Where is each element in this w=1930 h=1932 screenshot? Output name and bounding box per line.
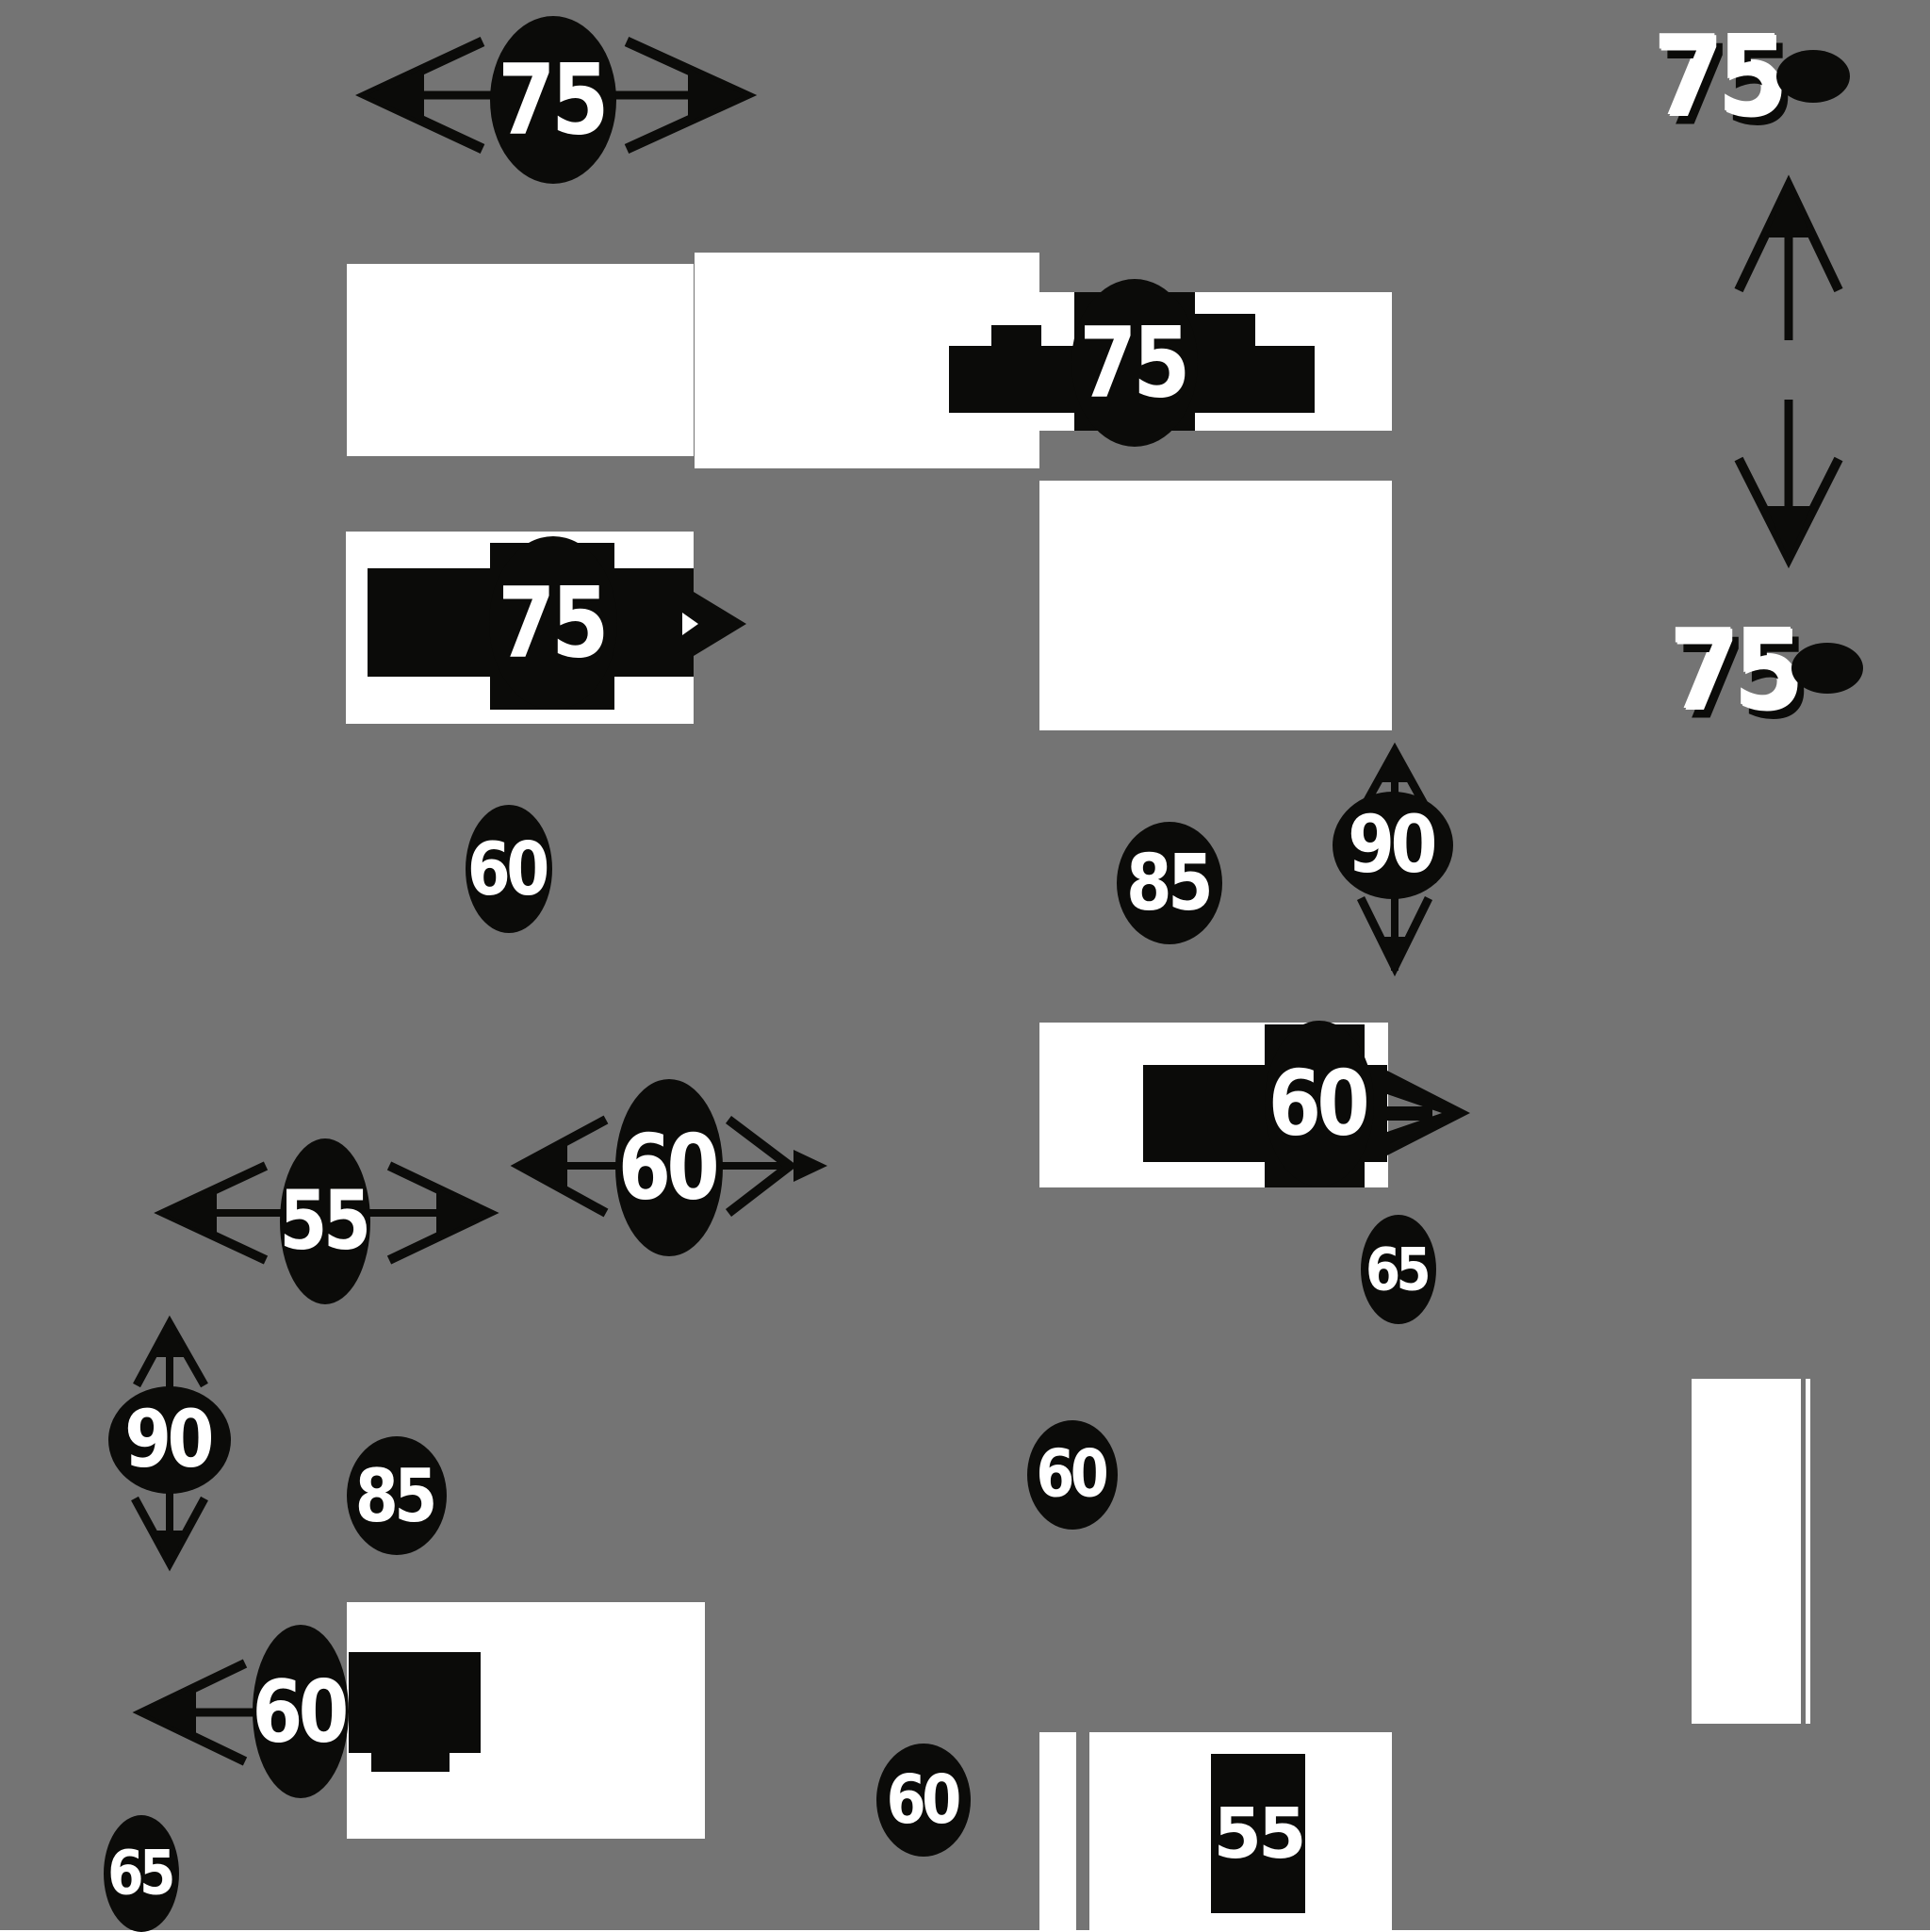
oval-60-bottom: 60 [876, 1744, 971, 1857]
oval-60-double-arrow-value: 60 [618, 1122, 720, 1212]
oval-65-bottom-left: 65 [104, 1815, 179, 1932]
oval-75-top-arrow: 75 [490, 16, 616, 184]
oval-75-row3: 75 [489, 536, 617, 710]
oval-75-band-value: 75 [1079, 314, 1190, 412]
oval-60-bottom-value: 60 [886, 1766, 961, 1833]
oval-65-right-value: 65 [1366, 1240, 1431, 1300]
oval-85-left-value: 85 [355, 1459, 438, 1532]
oval-90-right-value: 90 [1348, 806, 1437, 885]
oval-60-cluster-right: 60 [1265, 1021, 1374, 1187]
corner-75-bottom-value: 75 [1671, 608, 1800, 737]
oval-85-right-value: 85 [1126, 844, 1214, 922]
sign-55-rect: 55 [1211, 1754, 1305, 1913]
sign-55-value: 55 [1214, 1793, 1303, 1875]
oval-60-middle-value: 60 [1036, 1442, 1108, 1507]
oval-60-cluster-left-value: 60 [253, 1669, 350, 1755]
oval-55-value: 55 [279, 1181, 371, 1262]
right-arrowhead-60-icon [1387, 1071, 1470, 1155]
down-arrow-icon [1739, 400, 1839, 558]
oval-65-bottom-left-value: 65 [107, 1843, 175, 1905]
oval-75-row3-value: 75 [498, 574, 609, 672]
corner-75-top-dot [1776, 50, 1850, 103]
corner-75-bottom-dot [1791, 643, 1863, 694]
corner-75-bottom-text: 75 [1671, 608, 1800, 737]
corner-75-top-text: 75 [1655, 14, 1784, 143]
oval-55-double-arrow: 55 [280, 1138, 370, 1304]
oval-60-double-arrow: 60 [615, 1079, 723, 1256]
oval-90-right: 90 [1333, 792, 1453, 899]
oval-60-cluster-right-value: 60 [1268, 1058, 1370, 1148]
oval-90-left-value: 90 [124, 1400, 214, 1480]
oval-60-cluster-left: 60 [253, 1625, 349, 1798]
oval-75-band: 75 [1071, 279, 1198, 447]
corner-75-top-value: 75 [1655, 14, 1784, 143]
oval-60-below-band: 60 [466, 805, 552, 933]
oval-90-left: 90 [108, 1386, 231, 1494]
oval-60-middle: 60 [1027, 1420, 1118, 1530]
oval-60-below-band-value: 60 [467, 832, 550, 906]
right-arrowhead-75-icon [682, 592, 746, 656]
oval-85-right: 85 [1117, 822, 1222, 944]
diagram-canvas: 55 [0, 0, 1930, 1930]
up-arrow-icon [1739, 184, 1839, 340]
oval-65-right: 65 [1361, 1215, 1436, 1324]
oval-75-top-value: 75 [498, 51, 609, 149]
oval-85-left: 85 [347, 1436, 447, 1555]
